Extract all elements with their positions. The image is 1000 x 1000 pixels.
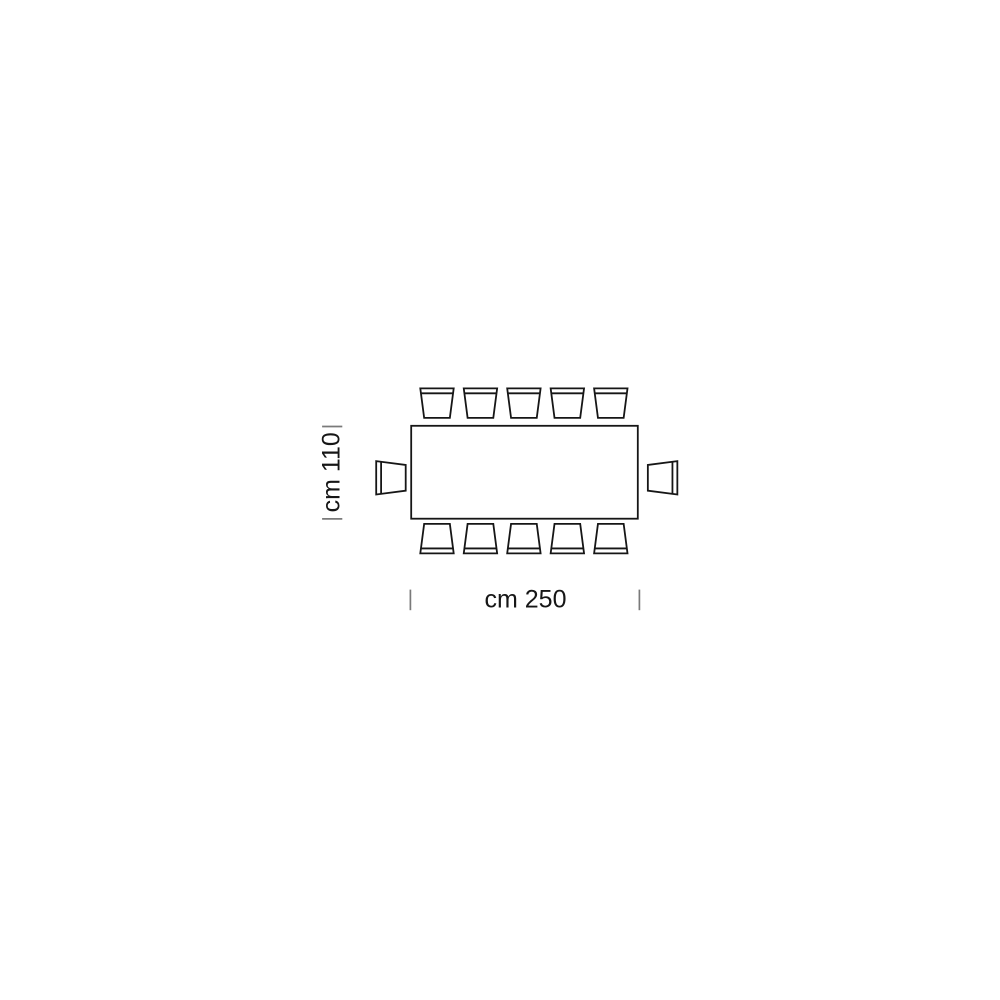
svg-text:cm 110: cm 110 bbox=[318, 432, 346, 512]
svg-text:cm 250: cm 250 bbox=[485, 586, 567, 614]
